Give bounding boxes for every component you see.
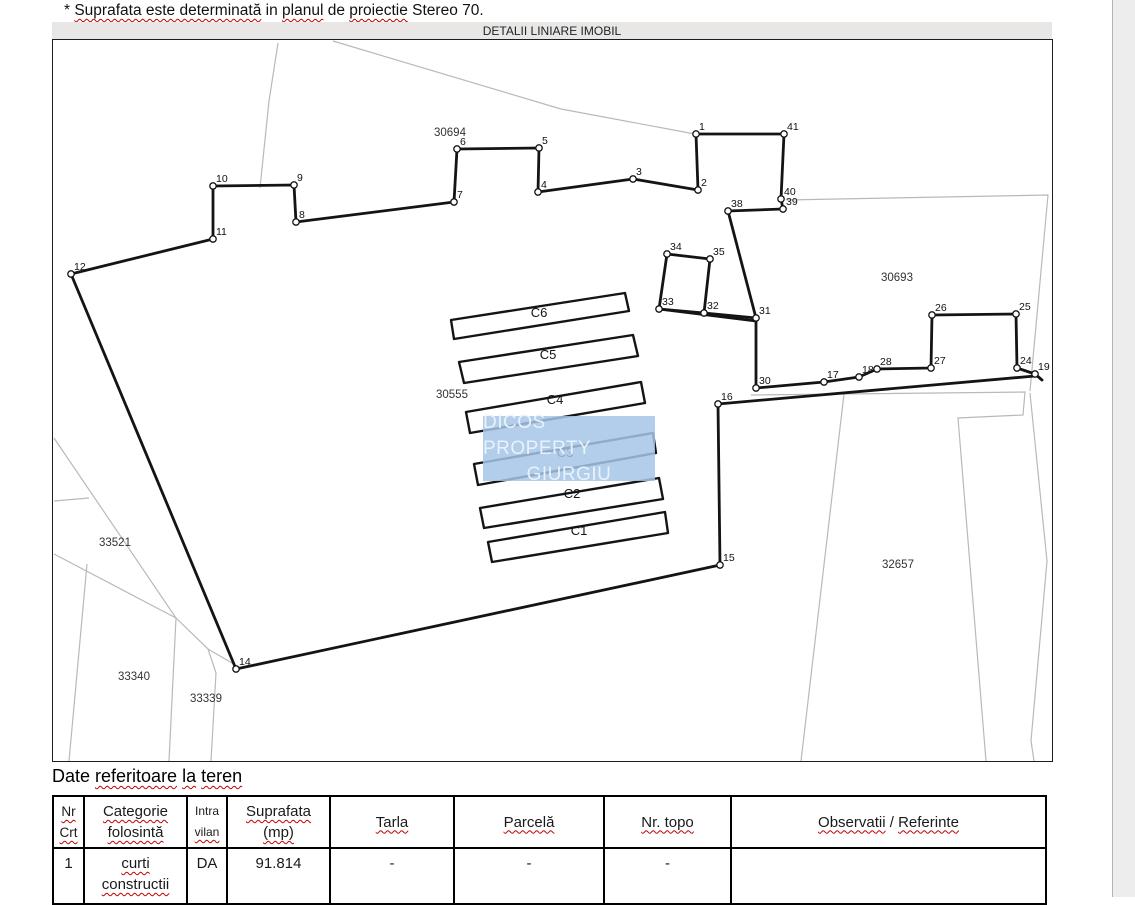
cell-constructii: constructii bbox=[102, 876, 170, 893]
vertex-label-40: 40 bbox=[784, 186, 796, 198]
vertex-label-4: 4 bbox=[541, 179, 547, 191]
vertex-label-6: 6 bbox=[460, 136, 466, 148]
vertex-label-35: 35 bbox=[713, 246, 725, 258]
cell-parcela: - bbox=[454, 848, 604, 904]
col-header-nr-topo: Nr. topo bbox=[604, 796, 731, 848]
note-suffix: Stereo 70. bbox=[408, 2, 484, 19]
vertex-label-33: 33 bbox=[662, 296, 674, 308]
building-label-c6: C6 bbox=[531, 305, 548, 320]
cell-curti: curti bbox=[121, 855, 149, 872]
col-header-nr-crt: NrCrt bbox=[53, 796, 84, 848]
hdr-vilan: vilan bbox=[195, 825, 220, 839]
vertex-label-1: 1 bbox=[699, 121, 705, 133]
vertex-label-18: 18 bbox=[862, 364, 874, 376]
hdr-crt: Crt bbox=[60, 825, 78, 840]
hdr-mp: (mp) bbox=[263, 824, 294, 841]
vertex-label-38: 38 bbox=[731, 198, 743, 210]
vertex-label-26: 26 bbox=[935, 302, 947, 314]
watermark-line2: GIURGIU bbox=[527, 462, 612, 488]
parcel-label-33340: 33340 bbox=[118, 671, 150, 683]
vertex-label-7: 7 bbox=[457, 189, 463, 201]
vertex-label-3: 3 bbox=[636, 166, 642, 178]
watermark-line1: DICOS PROPERTY bbox=[483, 410, 655, 462]
cell-tarla: - bbox=[330, 848, 454, 904]
col-header-tarla: Tarla bbox=[330, 796, 454, 848]
map-drawing: 30694306933055533521333403333932657C6C5C… bbox=[53, 40, 1052, 761]
map-title-bar: DETALII LINIARE IMOBIL bbox=[52, 22, 1052, 39]
note-prefix: * bbox=[64, 2, 74, 19]
cell-nr-crt: 1 bbox=[53, 848, 84, 904]
vertex-label-10: 10 bbox=[216, 173, 228, 185]
cell-categorie: curticonstructii bbox=[84, 848, 187, 904]
parcel-label-33521: 33521 bbox=[99, 537, 131, 549]
hdr-suprafata: Suprafata bbox=[246, 803, 311, 820]
map-title: DETALII LINIARE IMOBIL bbox=[483, 24, 621, 38]
vertex-label-2: 2 bbox=[701, 177, 707, 189]
hdr-referinte: Referinte bbox=[898, 814, 959, 831]
cadastral-map: 30694306933055533521333403333932657C6C5C… bbox=[52, 39, 1053, 762]
vertex-label-24: 24 bbox=[1020, 355, 1032, 367]
vertex-label-25: 25 bbox=[1019, 301, 1031, 313]
heading-plain: Date bbox=[52, 766, 95, 786]
col-header-observatii: Observatii / Referinte bbox=[731, 796, 1046, 848]
vertex-label-41: 41 bbox=[787, 121, 799, 133]
vertex-label-27: 27 bbox=[934, 355, 946, 367]
building-label-c5: C5 bbox=[540, 347, 557, 362]
parcel-label-30555: 30555 bbox=[436, 389, 468, 401]
watermark: DICOS PROPERTY GIURGIU bbox=[483, 416, 655, 481]
col-header-suprafata: Suprafata(mp) bbox=[227, 796, 330, 848]
vertex-label-19: 19 bbox=[1038, 361, 1050, 373]
heading-wavy-1: referitoare bbox=[95, 766, 177, 786]
building-label-c2: C2 bbox=[564, 486, 581, 501]
col-header-parcela: Parcelă bbox=[454, 796, 604, 848]
hdr-categorie: Categorie bbox=[103, 803, 168, 820]
note-wavy-3: proiectie bbox=[349, 2, 408, 19]
hdr-nr: Nr bbox=[61, 804, 75, 819]
hdr-nr-topo: Nr. topo bbox=[641, 814, 694, 831]
vertex-label-14: 14 bbox=[239, 656, 251, 668]
vertex-label-12: 12 bbox=[74, 261, 86, 273]
hdr-observatii: Observatii bbox=[818, 814, 886, 831]
cell-nr-topo: - bbox=[604, 848, 731, 904]
hdr-obs-sep: / bbox=[886, 814, 899, 831]
vertex-label-34: 34 bbox=[670, 241, 682, 253]
parcel-label-33339: 33339 bbox=[190, 693, 222, 705]
land-data-table: NrCrt Categoriefolosintă Intravilan Supr… bbox=[52, 795, 1047, 905]
parcel-label-30693: 30693 bbox=[881, 272, 913, 284]
section-heading: Date referitoare la teren bbox=[52, 766, 242, 787]
vertex-label-28: 28 bbox=[880, 356, 892, 368]
hdr-intra: Intra bbox=[195, 804, 219, 818]
heading-wavy-2: la bbox=[182, 766, 196, 786]
parcel-label-32657: 32657 bbox=[882, 559, 914, 571]
note-mid-2: de bbox=[323, 2, 349, 19]
hdr-tarla: Tarla bbox=[376, 814, 409, 831]
col-header-categorie: Categoriefolosintă bbox=[84, 796, 187, 848]
vertex-label-32: 32 bbox=[707, 300, 719, 312]
building-label-c4: C4 bbox=[547, 392, 564, 407]
note-wavy-2: planul bbox=[282, 2, 323, 19]
vertex-label-11: 11 bbox=[216, 226, 227, 238]
heading-wavy-3: teren bbox=[201, 766, 242, 786]
note-wavy-1: Suprafata este determinată bbox=[74, 2, 261, 19]
projection-note: * Suprafata este determinată in planul d… bbox=[64, 2, 484, 20]
note-mid-1: in bbox=[261, 2, 282, 19]
vertex-label-5: 5 bbox=[542, 135, 548, 147]
table-data-row: 1 curticonstructii DA 91.814 - - - bbox=[53, 848, 1046, 904]
page-right-margin bbox=[1112, 0, 1135, 897]
table-header-row: NrCrt Categoriefolosintă Intravilan Supr… bbox=[53, 796, 1046, 848]
building-label-c1: C1 bbox=[571, 523, 588, 538]
hdr-folosinta: folosintă bbox=[108, 824, 164, 841]
vertex-label-15: 15 bbox=[723, 552, 735, 564]
vertex-label-9: 9 bbox=[297, 172, 303, 184]
vertex-label-8: 8 bbox=[299, 209, 305, 221]
cell-intravilan: DA bbox=[187, 848, 227, 904]
vertex-label-16: 16 bbox=[721, 391, 733, 403]
vertex-label-31: 31 bbox=[759, 305, 771, 317]
vertex-label-30: 30 bbox=[759, 375, 771, 387]
col-header-intravilan: Intravilan bbox=[187, 796, 227, 848]
hdr-parcela: Parcelă bbox=[504, 814, 555, 831]
cell-suprafata: 91.814 bbox=[227, 848, 330, 904]
vertex-label-17: 17 bbox=[827, 369, 839, 381]
cell-observatii bbox=[731, 848, 1046, 904]
